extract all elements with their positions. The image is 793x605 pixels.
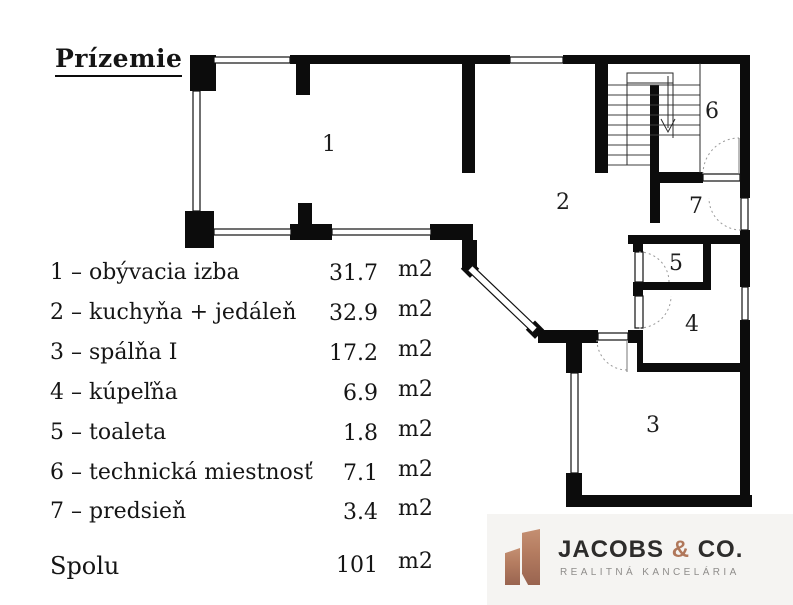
legend-total-unit: m2 [398,549,433,574]
logo-bar-left [505,548,520,585]
logo-ampersand: & [672,536,690,563]
legend-room-label: 7 – predsieň [50,499,186,524]
floor-plan-drawing [185,40,760,515]
logo-name-left: JACOBS [558,536,672,563]
room-number-5: 5 [669,253,683,275]
diagonal-window [468,265,538,332]
floorplan-page: { "title": "Prízemie", "legend": { "rows… [0,0,793,605]
room-number-4: 4 [685,314,699,336]
room-number-7: 7 [689,196,703,218]
room-number-2: 2 [556,192,570,214]
legend-room-label: 5 – toaleta [50,420,166,445]
floor-plan: 1 2 3 4 5 6 7 [185,40,760,515]
legend-total-value: 101 [285,553,378,578]
logo-name-right: CO. [690,536,743,563]
buildings-logo-icon [505,527,543,585]
page-title: Prízemie [55,44,182,77]
walls [185,55,752,507]
room-number-1: 1 [322,134,336,156]
logo-bar-right [522,529,540,585]
room-number-6: 6 [705,101,719,123]
legend-room-label: 3 – spálňa I [50,340,177,365]
logo-company-name: JACOBS & CO. [558,536,743,564]
room-number-3: 3 [646,415,660,437]
legend-room-label: 4 – kúpeľňa [50,380,178,405]
logo-subtitle: REALITNÁ KANCELÁRIA [560,567,740,578]
legend-total-label: Spolu [50,552,119,580]
